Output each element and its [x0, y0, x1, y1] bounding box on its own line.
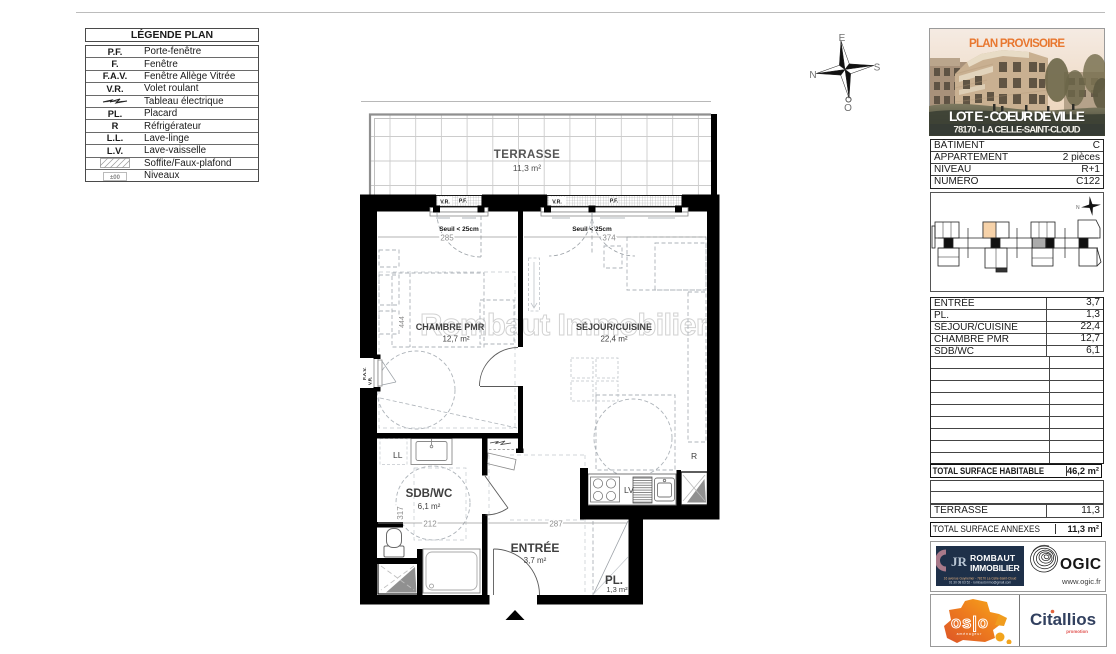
- svg-text:Seuil < 25cm: Seuil < 25cm: [439, 226, 479, 233]
- svg-text:Seuil < 25cm: Seuil < 25cm: [572, 226, 612, 233]
- svg-text:LOT E - COEUR DE VILLE: LOT E - COEUR DE VILLE: [949, 109, 1085, 124]
- svg-text:N: N: [1076, 205, 1080, 211]
- svg-text:Citallios: Citallios: [1030, 610, 1096, 629]
- svg-text:os|o: os|o: [951, 614, 989, 632]
- svg-text:V.R.: V.R.: [552, 200, 562, 206]
- svg-text:22,4 m²: 22,4 m²: [600, 335, 627, 344]
- svg-text:3,7 m²: 3,7 m²: [524, 556, 547, 565]
- svg-text:www.ogic.fr: www.ogic.fr: [1061, 577, 1101, 586]
- svg-text:12,7 m²: 12,7 m²: [442, 335, 469, 344]
- svg-text:78170 - LA CELLE-SAINT-CLOUD: 78170 - LA CELLE-SAINT-CLOUD: [954, 124, 1081, 135]
- svg-text:PLAN PROVISOIRE: PLAN PROVISOIRE: [969, 38, 1065, 50]
- svg-text:promotion: promotion: [1066, 629, 1088, 634]
- svg-text:444: 444: [399, 316, 406, 328]
- svg-text:V.R.: V.R.: [368, 377, 373, 385]
- svg-text:O: O: [844, 103, 852, 114]
- svg-text:R: R: [691, 451, 697, 461]
- svg-text:V.R.: V.R.: [440, 200, 450, 206]
- svg-text:6,1 m²: 6,1 m²: [418, 502, 441, 511]
- svg-text:11,3 m²: 11,3 m²: [513, 163, 541, 173]
- svg-text:LV: LV: [624, 485, 634, 495]
- svg-text:ENTRÉE: ENTRÉE: [511, 540, 560, 555]
- svg-text:317: 317: [396, 506, 405, 520]
- svg-text:N: N: [809, 70, 816, 81]
- svg-text:E: E: [839, 33, 846, 44]
- svg-text:374: 374: [602, 234, 616, 243]
- svg-text:01 30 08 63 52 - rombaut.imm: 01 30 08 63 52 - rombaut.immo@gmail.com: [949, 580, 1012, 584]
- svg-text:SÉJOUR/CUISINE: SÉJOUR/CUISINE: [576, 322, 652, 332]
- svg-text:212: 212: [423, 520, 437, 529]
- svg-text:1,3 m²: 1,3 m²: [606, 585, 628, 594]
- svg-text:a m é n a g e u r: a m é n a g e u r: [957, 632, 983, 636]
- svg-text:285: 285: [440, 234, 454, 243]
- svg-text:SDB/WC: SDB/WC: [406, 488, 453, 500]
- svg-text:P.F.: P.F.: [459, 199, 468, 205]
- svg-text:OGIC: OGIC: [1060, 556, 1102, 573]
- svg-text:287: 287: [549, 520, 563, 529]
- svg-text:IMMOBILIER: IMMOBILIER: [970, 563, 1021, 573]
- svg-text:TERRASSE: TERRASSE: [494, 149, 561, 161]
- svg-text:S: S: [874, 63, 881, 74]
- svg-text:ROMBAUT: ROMBAUT: [970, 553, 1016, 563]
- svg-text:JR: JR: [951, 554, 968, 569]
- svg-text:P.F.: P.F.: [610, 199, 619, 205]
- svg-text:LL: LL: [393, 450, 403, 460]
- svg-text:CHAMBRE PMR: CHAMBRE PMR: [416, 322, 485, 332]
